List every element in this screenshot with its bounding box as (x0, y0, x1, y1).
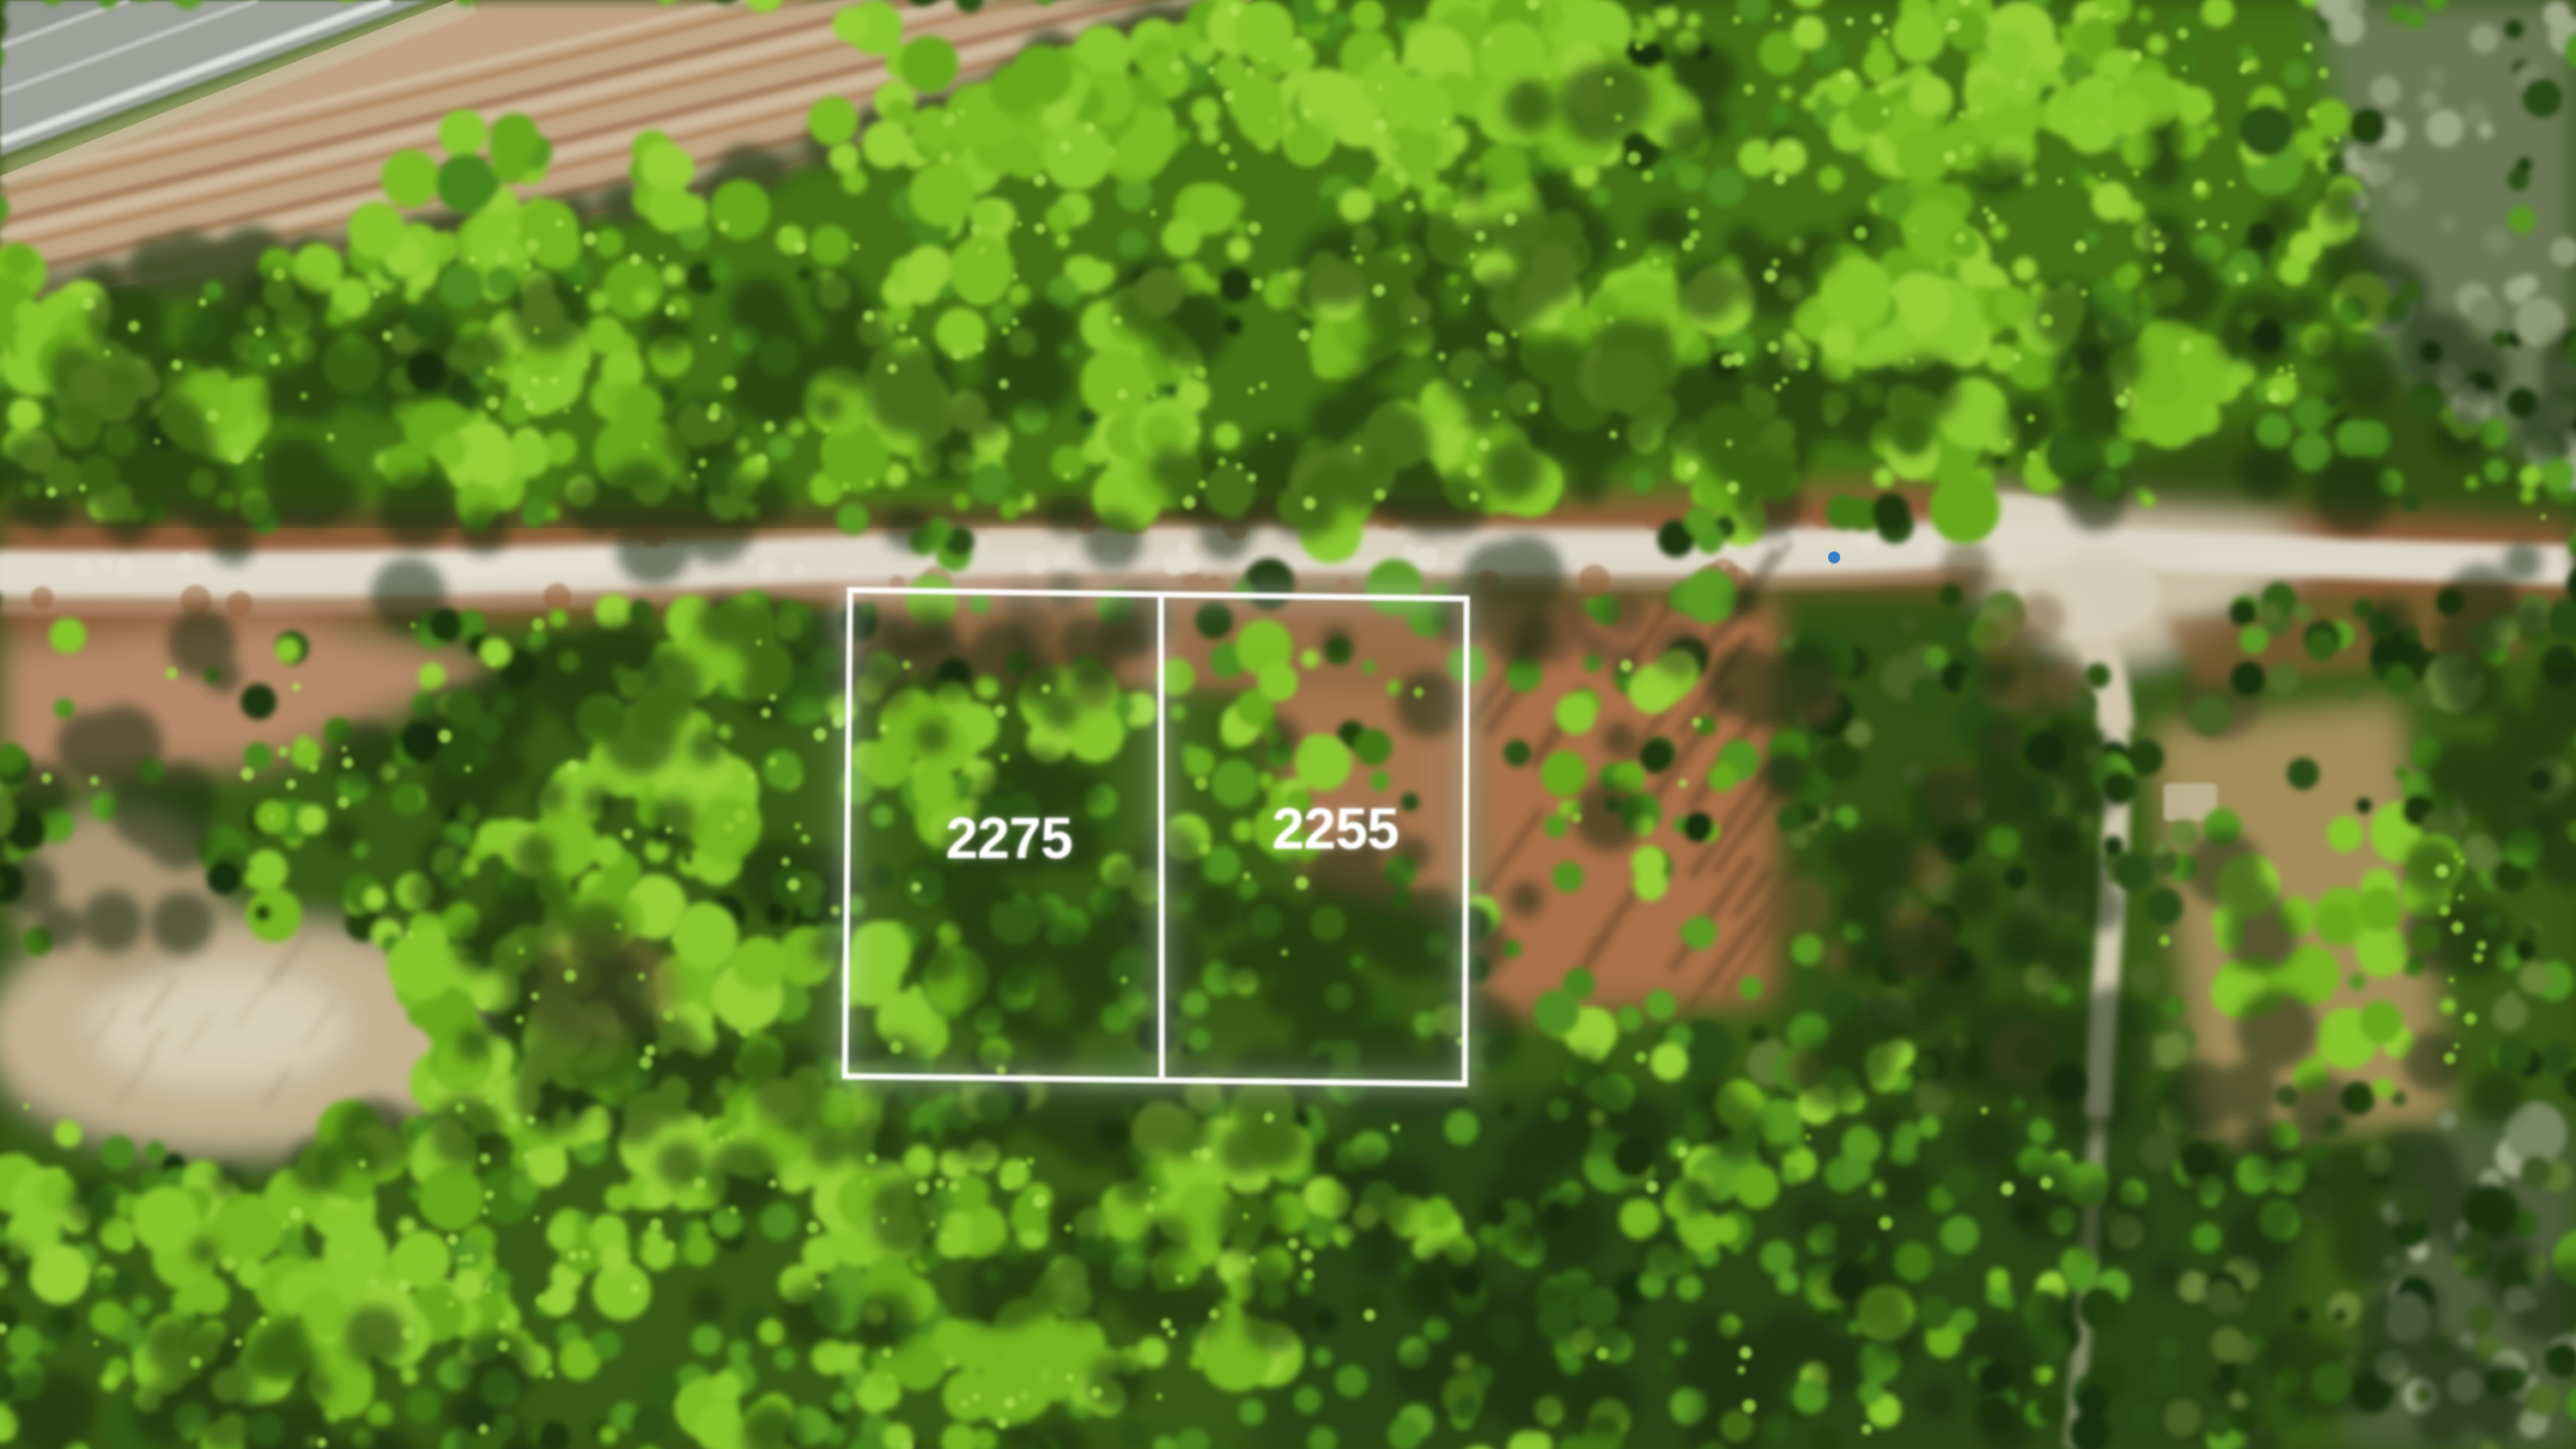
svg-text:2255: 2255 (1272, 796, 1398, 861)
svg-text:2275: 2275 (945, 806, 1072, 871)
